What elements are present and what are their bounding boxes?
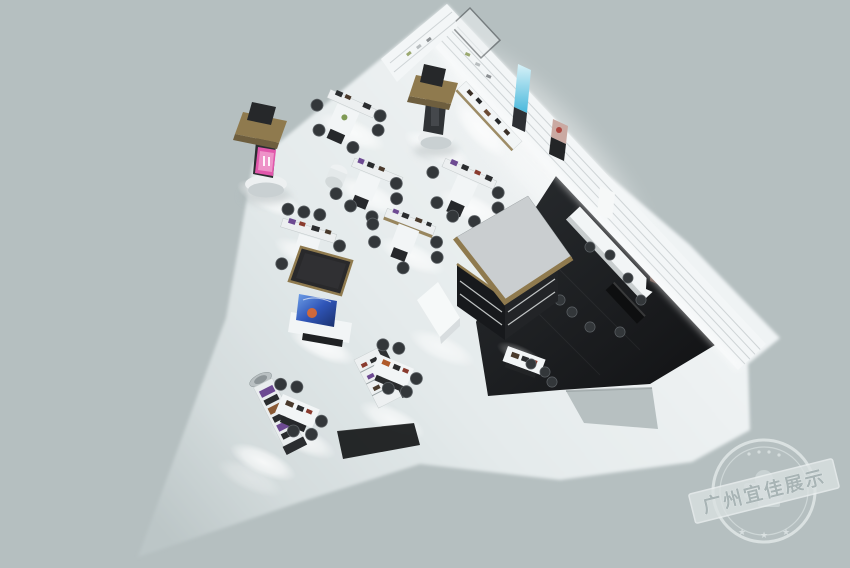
screen-inner bbox=[258, 151, 274, 172]
stamp-dot bbox=[767, 450, 770, 453]
round-base-lower bbox=[421, 137, 452, 150]
poster-accent bbox=[556, 127, 562, 133]
stool bbox=[567, 307, 577, 317]
stool bbox=[540, 367, 550, 377]
stool bbox=[585, 242, 595, 252]
stamp-dot bbox=[747, 452, 750, 455]
figure-silhouette bbox=[268, 157, 270, 166]
stool bbox=[623, 273, 633, 283]
stool bbox=[585, 322, 595, 332]
round-base-lower bbox=[248, 183, 284, 198]
stool bbox=[547, 377, 557, 387]
stamp-star-icon: ★ bbox=[760, 531, 768, 541]
store-3d-render: ★ ★ ★ 广州宜佳展示 bbox=[0, 0, 850, 568]
stamp-dot bbox=[777, 453, 780, 456]
screen-graphic bbox=[307, 308, 317, 318]
stool bbox=[526, 359, 536, 369]
stool bbox=[636, 295, 646, 305]
figure-silhouette bbox=[263, 156, 265, 166]
stool bbox=[615, 327, 625, 337]
stool bbox=[605, 250, 615, 260]
stamp-dot bbox=[757, 450, 760, 453]
render-viewport: ★ ★ ★ 广州宜佳展示 bbox=[0, 0, 850, 568]
stamp-star-icon: ★ bbox=[782, 528, 790, 538]
stamp-star-icon: ★ bbox=[738, 528, 746, 538]
